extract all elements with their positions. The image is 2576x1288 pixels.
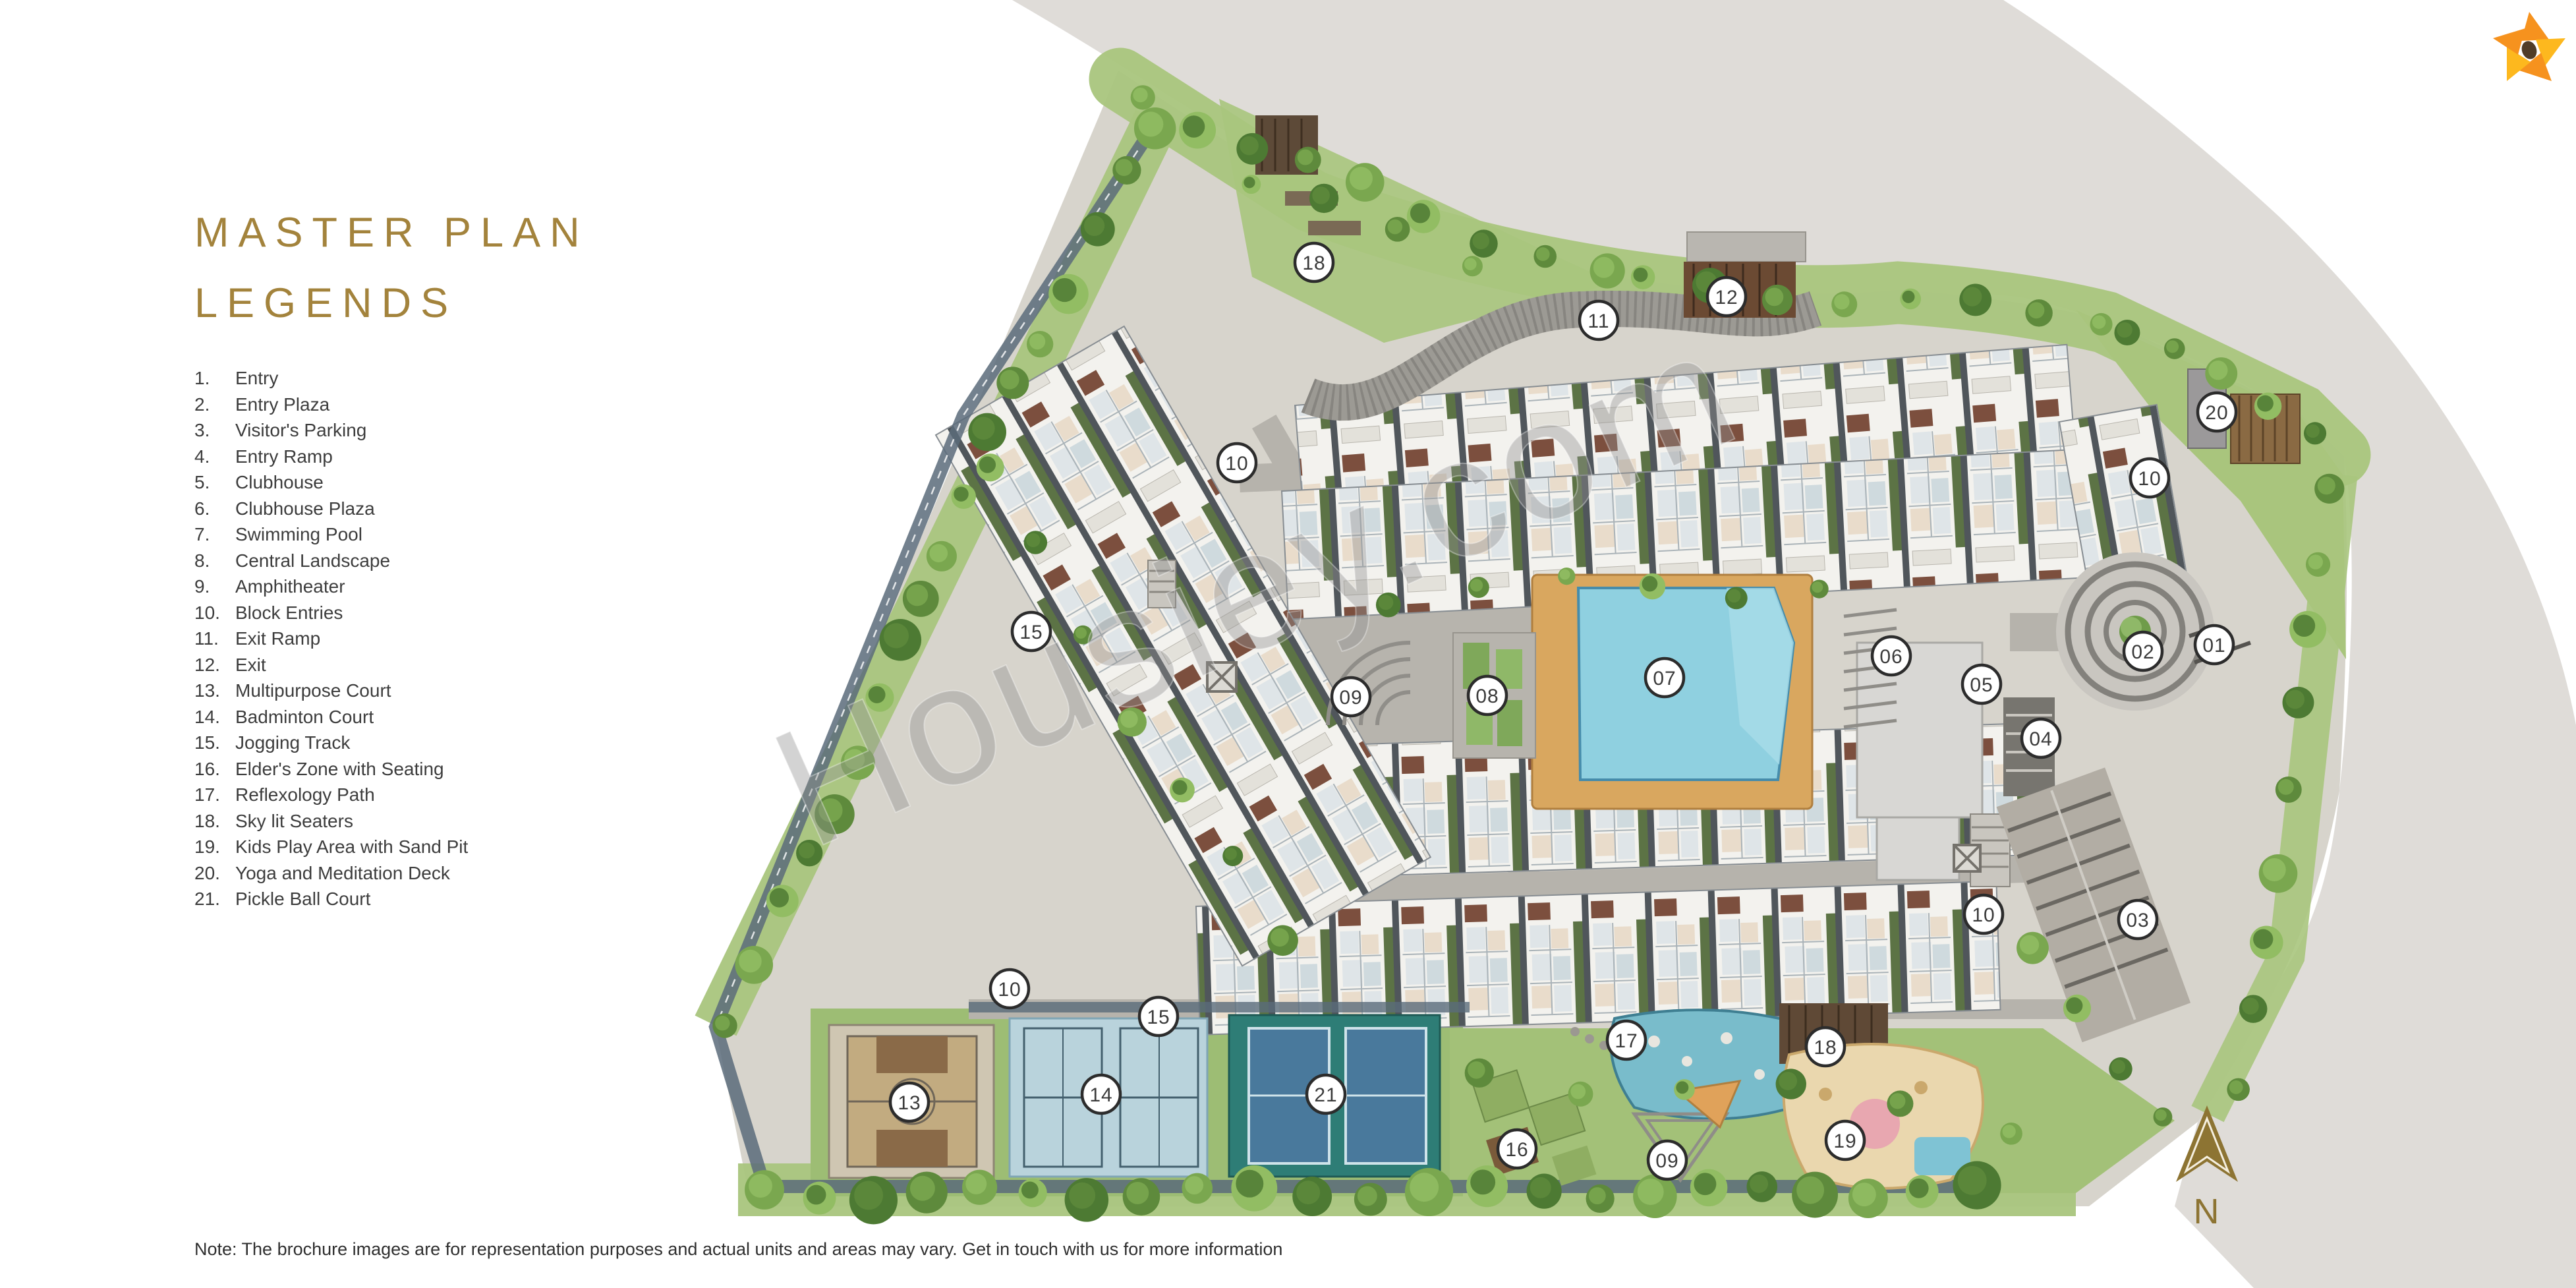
legend-item-label: Yoga and Meditation Deck: [235, 860, 450, 887]
svg-text:06: 06: [1879, 646, 1903, 668]
svg-text:05: 05: [1970, 674, 1993, 696]
svg-text:19: 19: [1833, 1130, 1856, 1152]
map-marker: 09: [1648, 1141, 1686, 1179]
legend-item: 6.Clubhouse Plaza: [194, 496, 643, 522]
legend-item: 17.Reflexology Path: [194, 782, 643, 808]
map-marker: 10: [2131, 459, 2169, 497]
legend-item-label: Exit Ramp: [235, 626, 320, 652]
legend-item-number: 2.: [194, 392, 235, 418]
svg-text:08: 08: [1475, 686, 1499, 707]
svg-text:10: 10: [1225, 453, 1248, 475]
legend-item-label: Swimming Pool: [235, 521, 362, 548]
north-label: N: [2194, 1192, 2221, 1231]
legend-item: 4.Entry Ramp: [194, 444, 643, 470]
legend-item-label: Block Entries: [235, 600, 343, 626]
svg-text:09: 09: [1339, 687, 1362, 709]
legend-title-line2: LEGENDS: [194, 283, 643, 324]
legend-item-number: 19.: [194, 834, 235, 860]
legend-item-label: Pickle Ball Court: [235, 886, 370, 912]
legend-item-number: 4.: [194, 444, 235, 470]
legend-item: 21.Pickle Ball Court: [194, 886, 643, 912]
legend-item-number: 1.: [194, 365, 235, 392]
svg-text:04: 04: [2029, 728, 2052, 750]
map-marker: 09: [1332, 678, 1370, 716]
entry-plaza-circles: [2056, 552, 2214, 711]
legend-item: 15.Jogging Track: [194, 730, 643, 756]
legend-item: 10.Block Entries: [194, 600, 643, 626]
legend-item-label: Entry: [235, 365, 278, 392]
legend-item-label: Elder's Zone with Seating: [235, 756, 444, 782]
map-marker: 20: [2198, 393, 2236, 431]
map-marker: 03: [2119, 900, 2157, 939]
lift-icon: [1954, 845, 1980, 871]
legend-title: MASTER PLAN LEGENDS: [194, 212, 643, 324]
legend-item: 13.Multipurpose Court: [194, 678, 643, 704]
map-marker: 12: [1707, 278, 1746, 316]
map-marker: 07: [1646, 659, 1684, 697]
legend-item-number: 20.: [194, 860, 235, 887]
legend-item: 11.Exit Ramp: [194, 626, 643, 652]
map-marker: 15: [1139, 997, 1178, 1036]
legend-item: 2.Entry Plaza: [194, 392, 643, 418]
legend-item: 3.Visitor's Parking: [194, 417, 643, 444]
legend-item: 5.Clubhouse: [194, 469, 643, 496]
legend-item-label: Multipurpose Court: [235, 678, 391, 704]
map-marker: 15: [1012, 612, 1050, 651]
legend-item-label: Exit: [235, 652, 266, 678]
svg-text:15: 15: [1019, 622, 1043, 643]
map-marker: 04: [2022, 719, 2060, 757]
svg-text:13: 13: [898, 1092, 921, 1114]
legend-item-number: 3.: [194, 417, 235, 444]
legend-item-number: 14.: [194, 704, 235, 730]
legend-item-number: 9.: [194, 573, 235, 600]
map-marker: 05: [1962, 665, 2001, 703]
svg-text:21: 21: [1314, 1084, 1337, 1106]
map-marker: 18: [1806, 1028, 1845, 1066]
map-marker: 14: [1082, 1075, 1120, 1113]
legend-item-label: Visitor's Parking: [235, 417, 366, 444]
legend-item: 16.Elder's Zone with Seating: [194, 756, 643, 782]
svg-text:09: 09: [1655, 1150, 1678, 1172]
legend-item-label: Sky lit Seaters: [235, 808, 353, 834]
map-marker: 10: [1964, 895, 2003, 933]
note-text: Note: The brochure images are for repres…: [194, 1239, 1282, 1260]
map-marker: 01: [2195, 626, 2233, 664]
map-marker: 10: [990, 970, 1029, 1008]
legend-item-label: Badminton Court: [235, 704, 374, 730]
map-marker: 21: [1307, 1075, 1345, 1113]
map-marker: 13: [890, 1083, 929, 1121]
legend-item-label: Jogging Track: [235, 730, 350, 756]
legend-item-label: Kids Play Area with Sand Pit: [235, 834, 468, 860]
svg-text:17: 17: [1615, 1030, 1638, 1052]
legend-item: 20.Yoga and Meditation Deck: [194, 860, 643, 887]
legend-item-number: 6.: [194, 496, 235, 522]
kids-play-area: [1784, 1044, 1983, 1188]
svg-text:02: 02: [2131, 641, 2154, 663]
legend-item-label: Clubhouse Plaza: [235, 496, 375, 522]
legend-item: 19.Kids Play Area with Sand Pit: [194, 834, 643, 860]
legend-item: 8.Central Landscape: [194, 548, 643, 574]
legend-item-number: 21.: [194, 886, 235, 912]
svg-text:07: 07: [1653, 668, 1676, 689]
map-marker: 10: [1218, 444, 1256, 482]
legend-item-label: Entry Plaza: [235, 392, 329, 418]
legend-item-number: 8.: [194, 548, 235, 574]
svg-text:10: 10: [998, 979, 1021, 1001]
svg-text:18: 18: [1814, 1037, 1837, 1059]
legend-item: 1.Entry: [194, 365, 643, 392]
legend-panel: MASTER PLAN LEGENDS 1.Entry2.Entry Plaza…: [194, 212, 643, 912]
svg-text:01: 01: [2202, 635, 2225, 657]
map-marker: 06: [1872, 637, 1910, 675]
legend-item: 7.Swimming Pool: [194, 521, 643, 548]
svg-text:18: 18: [1302, 252, 1325, 274]
legend-item-label: Amphitheater: [235, 573, 345, 600]
legend-item: 12.Exit: [194, 652, 643, 678]
exit-canopy: [1687, 232, 1806, 262]
map-marker: 08: [1468, 676, 1506, 715]
svg-text:20: 20: [2205, 402, 2228, 424]
legend-list: 1.Entry2.Entry Plaza3.Visitor's Parking4…: [194, 365, 643, 912]
legend-item-label: Reflexology Path: [235, 782, 375, 808]
legend-item-number: 11.: [194, 626, 235, 652]
legend-item-number: 13.: [194, 678, 235, 704]
legend-item-label: Clubhouse: [235, 469, 324, 496]
map-marker: 16: [1498, 1130, 1536, 1168]
legend-item-number: 5.: [194, 469, 235, 496]
legend-item-number: 12.: [194, 652, 235, 678]
svg-text:03: 03: [2126, 910, 2149, 931]
legend-item-number: 10.: [194, 600, 235, 626]
svg-text:12: 12: [1715, 287, 1738, 308]
map-marker: 18: [1295, 243, 1333, 281]
legend-item: 18.Sky lit Seaters: [194, 808, 643, 834]
legend-item-number: 15.: [194, 730, 235, 756]
legend-title-line1: MASTER PLAN: [194, 212, 643, 254]
svg-text:11: 11: [1588, 310, 1609, 332]
master-plan-page: Housiey.com 1811121020101509080706050201…: [0, 0, 2576, 1288]
clubhouse-annex: [1877, 817, 1959, 880]
map-marker: 02: [2124, 632, 2162, 670]
svg-text:14: 14: [1089, 1084, 1112, 1106]
legend-item-label: Entry Ramp: [235, 444, 333, 470]
map-marker: 17: [1607, 1021, 1646, 1059]
map-marker: 11: [1580, 301, 1618, 339]
svg-text:10: 10: [1972, 904, 1995, 926]
svg-text:16: 16: [1505, 1139, 1528, 1161]
legend-item-number: 17.: [194, 782, 235, 808]
legend-item: 9.Amphitheater: [194, 573, 643, 600]
svg-text:15: 15: [1147, 1007, 1170, 1028]
legend-item-number: 7.: [194, 521, 235, 548]
legend-item-number: 16.: [194, 756, 235, 782]
map-marker: 19: [1826, 1121, 1864, 1159]
legend-item-number: 18.: [194, 808, 235, 834]
svg-text:10: 10: [2138, 468, 2161, 490]
legend-item: 14.Badminton Court: [194, 704, 643, 730]
brand-logo-icon: [2493, 12, 2565, 81]
legend-item-label: Central Landscape: [235, 548, 390, 574]
